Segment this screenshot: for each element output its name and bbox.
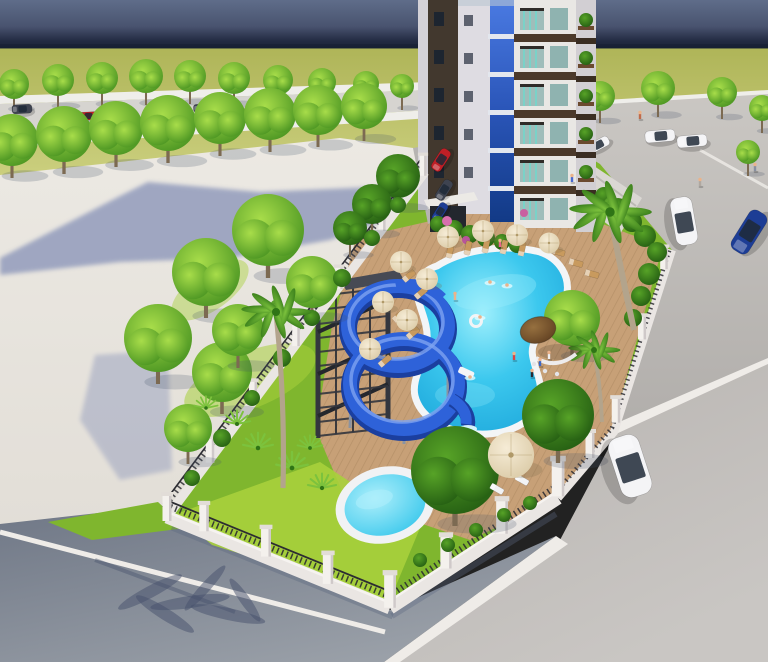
sky	[0, 0, 768, 48]
floor-band	[514, 110, 576, 118]
fence-pillar	[260, 525, 273, 557]
balcony-plant	[579, 51, 593, 65]
hedge-bush	[631, 286, 651, 306]
flower-bush	[520, 209, 528, 217]
hedge-bush	[638, 263, 660, 285]
hedge-bush	[390, 197, 406, 213]
curtain-window	[520, 46, 568, 68]
window	[464, 53, 473, 64]
balcony-plant	[579, 165, 593, 179]
hedge-bush	[333, 269, 351, 287]
render-viewport	[0, 0, 768, 662]
hedge-bush	[184, 470, 200, 486]
window	[434, 126, 444, 140]
fence-pillar	[383, 570, 398, 608]
glass-slab	[488, 186, 516, 191]
curtain-window	[520, 84, 568, 106]
hedge-bush	[647, 242, 667, 262]
horizon-line	[0, 44, 768, 49]
glass-slab	[488, 34, 516, 39]
window	[464, 129, 473, 140]
glass-slab	[488, 148, 516, 153]
balcony-plant	[579, 13, 593, 27]
curtain-window	[520, 122, 568, 144]
balcony-plant	[579, 89, 593, 103]
hedge-bush	[244, 390, 260, 406]
tower-white-column	[458, 0, 490, 214]
balcony-band	[576, 152, 596, 158]
bar-stool	[543, 369, 547, 373]
balcony-band	[576, 38, 596, 44]
bar-stool	[532, 362, 536, 366]
flower-bush	[442, 216, 452, 226]
glass-slab	[488, 110, 516, 115]
balcony-plant	[579, 127, 593, 141]
fence-pillar	[610, 395, 622, 423]
hedge-bush	[497, 508, 511, 522]
fence-pillar	[161, 492, 173, 521]
hedge-bush	[213, 429, 231, 447]
floor-band	[514, 148, 576, 156]
bar-stool	[555, 372, 559, 376]
hedge-bush	[413, 553, 427, 567]
window	[434, 88, 444, 102]
glass-slab	[488, 72, 516, 77]
window	[464, 167, 473, 178]
bar-shadow	[538, 344, 582, 360]
hedge-bush	[523, 496, 537, 510]
hedge-bush	[469, 523, 483, 537]
roof-terrace-rail	[458, 0, 514, 6]
curtain-window	[520, 198, 568, 220]
window	[434, 50, 444, 64]
curtain-window	[520, 8, 568, 30]
fence-pillar	[198, 501, 210, 531]
fence-pillar	[321, 551, 334, 584]
curtain-window	[520, 160, 568, 182]
window	[464, 91, 473, 102]
floor-band	[514, 186, 576, 194]
balcony-band	[576, 114, 596, 120]
window	[464, 15, 473, 26]
scene-canvas	[0, 0, 768, 662]
hedge-bush	[441, 538, 455, 552]
floor-band	[514, 34, 576, 42]
balcony-band	[576, 76, 596, 82]
hedge-bush	[364, 230, 380, 246]
floor-band	[514, 72, 576, 80]
window	[434, 12, 444, 26]
